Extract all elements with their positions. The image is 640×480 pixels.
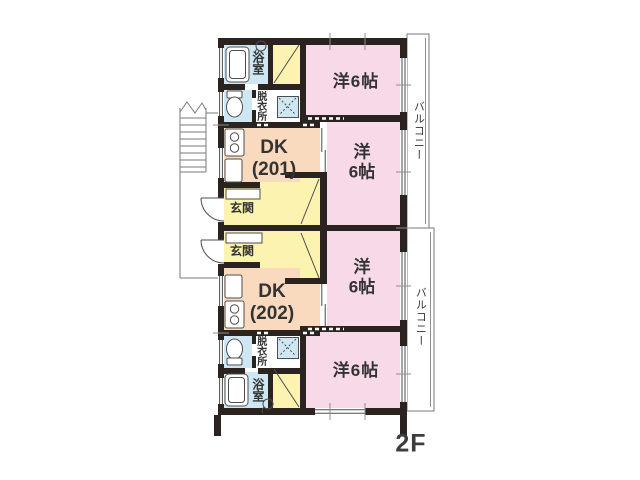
room-201-mid-line2: 6帖 [349, 162, 375, 182]
window-left-toilet-201 [218, 92, 224, 116]
window-left-bath-201 [218, 48, 224, 78]
sliding-door-201 [320, 128, 327, 172]
window-left-toilet-202 [218, 340, 224, 364]
balcony-top-label: バルコニー [412, 101, 425, 161]
bath-201-label: 浴室 [250, 51, 264, 75]
room-201-mid-label: 洋 6帖 [349, 142, 375, 181]
corridor [180, 113, 218, 278]
room-202-mid-line1: 洋 [349, 257, 375, 277]
sink-icon [225, 275, 242, 298]
entrance-step-202 [226, 233, 262, 243]
bathtub-icon [225, 374, 248, 406]
entry-door-icon [201, 240, 224, 263]
floor-plan-drawing [0, 0, 640, 480]
floor-plan: 洋6帖 洋 6帖 洋 6帖 洋6帖 DK (201) DK (202) 玄関 玄… [0, 0, 640, 480]
room-201-mid-line1: 洋 [349, 142, 375, 162]
stove-icon [225, 301, 244, 328]
window-right-room2 [400, 130, 407, 195]
dk-201-label: DK (201) [252, 137, 296, 181]
bathtub-icon [226, 47, 249, 82]
floor-label: 2F [395, 430, 426, 459]
balcony-bottom-label: バルコニー [414, 287, 427, 347]
dk-201-name: DK [252, 137, 296, 159]
window-bottom-room4 [315, 408, 365, 415]
toilet-icon [227, 91, 243, 117]
window-left-dk-202 [218, 276, 224, 306]
dressing-202-label: 脱衣所 [254, 336, 266, 366]
sliding-door-202 [320, 284, 327, 326]
sink-icon [225, 159, 242, 182]
room-201-top-label: 洋6帖 [333, 72, 379, 92]
window-left-bath-202 [218, 378, 224, 404]
entry-door-icon [201, 198, 224, 221]
stairs-icon [180, 102, 206, 172]
dressing-201-label: 脱衣所 [254, 91, 266, 121]
dk-201-number: (201) [252, 159, 296, 181]
room-202-mid-line2: 6帖 [349, 277, 375, 297]
stove-icon [225, 129, 244, 156]
dk-202-number: (202) [250, 303, 294, 325]
window-left-dk-201 [218, 148, 224, 178]
room-202-mid-label: 洋 6帖 [349, 257, 375, 296]
toilet-icon [227, 339, 243, 365]
dk-202-label: DK (202) [250, 281, 294, 325]
room-202-bottom-label: 洋6帖 [333, 361, 379, 381]
entrance-202-label: 玄関 [230, 245, 254, 259]
entrance-201-label: 玄関 [230, 202, 254, 216]
dk-202-name: DK [250, 281, 294, 303]
bath-202-label: 浴室 [250, 378, 264, 402]
entrance-step-201 [226, 189, 260, 199]
